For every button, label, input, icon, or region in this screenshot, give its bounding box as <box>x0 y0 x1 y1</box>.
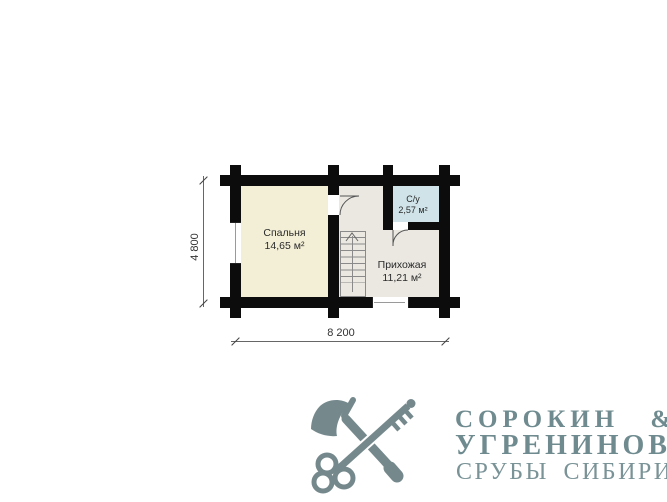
entrance-sill <box>374 302 405 303</box>
entrance-opening <box>372 297 409 308</box>
vertical-dimension-line <box>203 176 204 307</box>
window-mullion <box>235 223 236 263</box>
horizontal-dimension-label: 8 200 <box>311 327 371 339</box>
logo-subtitle: СРУБЫ СИБИРИ <box>456 459 667 486</box>
bathroom-door-opening <box>393 222 408 230</box>
horizontal-dimension-line <box>231 341 449 342</box>
vertical-dimension-label: 4 800 <box>189 217 201 277</box>
hallway-name: Прихожая <box>352 259 452 272</box>
bathroom-area: 2,57 м² <box>390 205 436 216</box>
hallway-area: 11,21 м² <box>352 272 452 285</box>
logo-title-line2: УГРЕНИНОВ <box>455 430 667 462</box>
bedroom-label: Спальня 14,65 м² <box>241 227 328 253</box>
right-wall <box>439 165 450 318</box>
bedroom-area: 14,65 м² <box>241 240 328 253</box>
interior-wall <box>328 165 339 318</box>
top-wall <box>220 175 460 186</box>
bedroom-door-opening <box>328 195 339 215</box>
bottom-wall <box>220 297 460 308</box>
axe-and-key-icon <box>308 392 434 498</box>
bedroom-name: Спальня <box>241 227 328 240</box>
window <box>230 222 241 264</box>
hallway-label: Прихожая 11,21 м² <box>352 259 452 285</box>
floor-plan-page: Спальня 14,65 м² Прихожая 11,21 м² С/у 2… <box>0 0 667 502</box>
bathroom-label: С/у 2,57 м² <box>390 194 436 216</box>
bathroom-name: С/у <box>390 194 436 205</box>
